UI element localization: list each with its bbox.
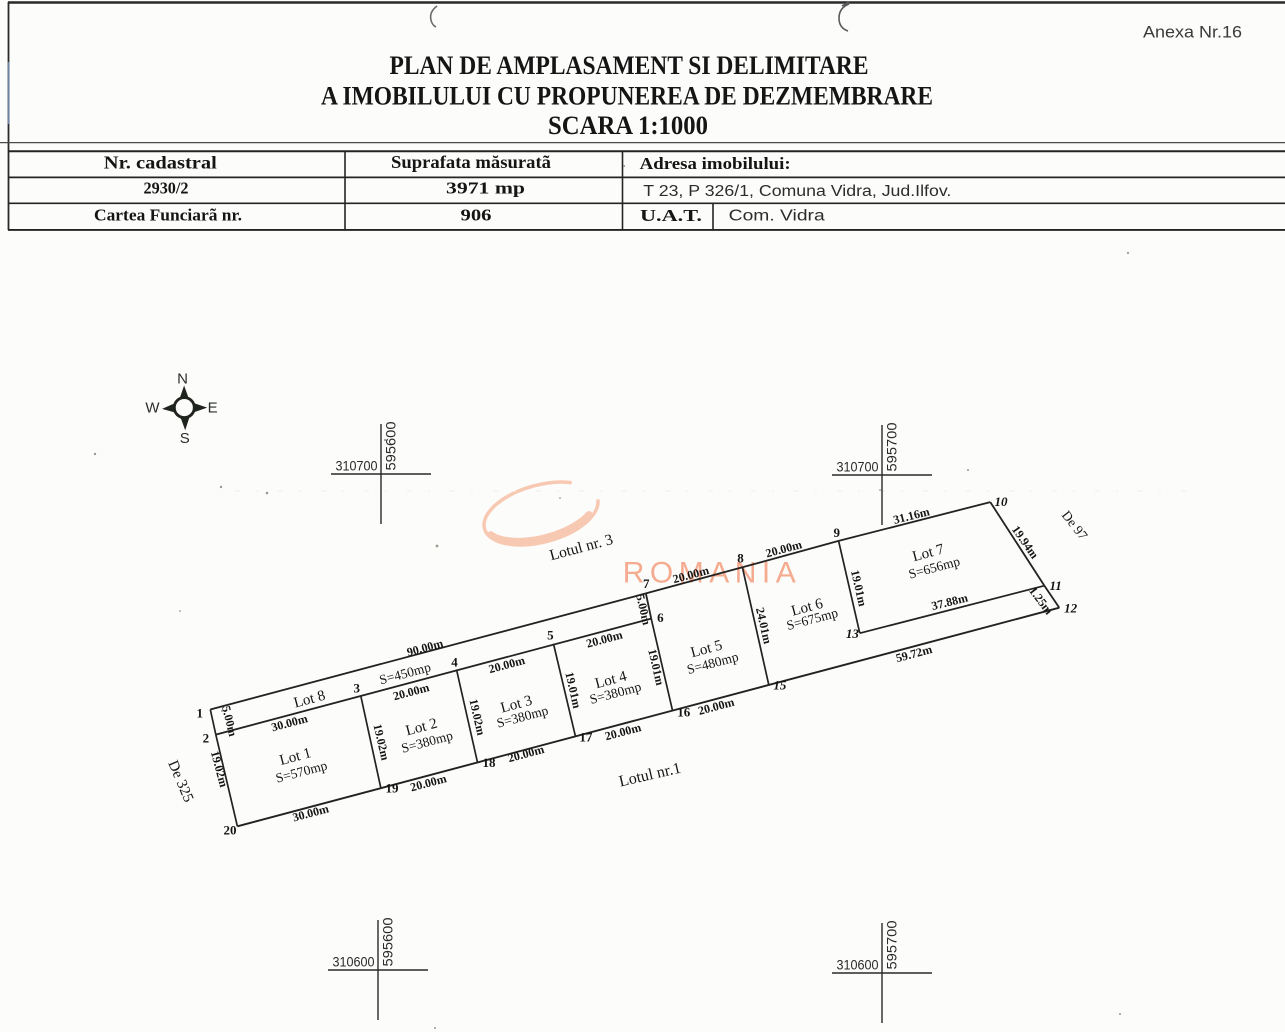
svg-text:595600: 595600 xyxy=(384,422,399,471)
svg-text:595700: 595700 xyxy=(885,921,900,970)
svg-text:U.A.T.: U.A.T. xyxy=(640,206,702,225)
svg-text:9: 9 xyxy=(833,525,840,540)
svg-text:12: 12 xyxy=(1064,601,1078,616)
svg-text:595600: 595600 xyxy=(381,918,396,967)
svg-text:N: N xyxy=(177,371,188,388)
svg-text:Cartea Funciarã nr.: Cartea Funciarã nr. xyxy=(94,206,242,225)
svg-text:15: 15 xyxy=(773,677,787,692)
svg-text:4: 4 xyxy=(451,655,458,670)
svg-text:19: 19 xyxy=(386,781,400,796)
svg-text:W: W xyxy=(145,399,160,416)
svg-text:2930/2: 2930/2 xyxy=(144,179,189,198)
svg-text:3971 mp: 3971 mp xyxy=(446,179,525,198)
svg-text:3: 3 xyxy=(354,681,361,696)
svg-text:595700: 595700 xyxy=(885,423,900,472)
svg-text:Com. Vidra: Com. Vidra xyxy=(729,208,825,225)
svg-text:Suprafata măsuratã: Suprafata măsuratã xyxy=(391,152,551,172)
svg-text:310700: 310700 xyxy=(837,460,879,475)
svg-text:Adresa imobilului:: Adresa imobilului: xyxy=(640,154,791,173)
svg-text:310600: 310600 xyxy=(837,958,879,973)
svg-text:16: 16 xyxy=(677,705,691,720)
svg-text:1: 1 xyxy=(197,705,204,720)
svg-text:5: 5 xyxy=(547,628,554,643)
svg-text:20: 20 xyxy=(224,822,237,837)
svg-text:Anexa Nr.16: Anexa Nr.16 xyxy=(1143,23,1242,42)
svg-text:13: 13 xyxy=(846,626,860,641)
svg-text:A IMOBILULUI CU PROPUNEREA DE: A IMOBILULUI CU PROPUNEREA DE DEZMEMBRAR… xyxy=(321,81,933,110)
svg-text:E: E xyxy=(208,399,218,416)
svg-text:S: S xyxy=(180,430,190,447)
svg-text:17: 17 xyxy=(579,730,593,745)
svg-text:6: 6 xyxy=(657,610,664,625)
svg-text:310600: 310600 xyxy=(333,955,375,970)
svg-text:SCARA 1:1000: SCARA 1:1000 xyxy=(548,111,708,140)
svg-text:PLAN DE AMPLASAMENT SI DELIMIT: PLAN DE AMPLASAMENT SI DELIMITARE xyxy=(390,51,869,80)
svg-text:T 23, P 326/1, Comuna Vidra, J: T 23, P 326/1, Comuna Vidra, Jud.Ilfov. xyxy=(643,183,951,200)
svg-text:11: 11 xyxy=(1049,578,1061,593)
svg-text:10: 10 xyxy=(995,494,1009,509)
svg-text:8: 8 xyxy=(737,551,744,566)
svg-text:310700: 310700 xyxy=(336,459,378,474)
svg-text:18: 18 xyxy=(483,755,497,770)
svg-text:Nr. cadastral: Nr. cadastral xyxy=(104,153,217,173)
svg-text:2: 2 xyxy=(203,731,210,746)
svg-text:7: 7 xyxy=(643,576,650,591)
svg-text:906: 906 xyxy=(461,206,492,225)
